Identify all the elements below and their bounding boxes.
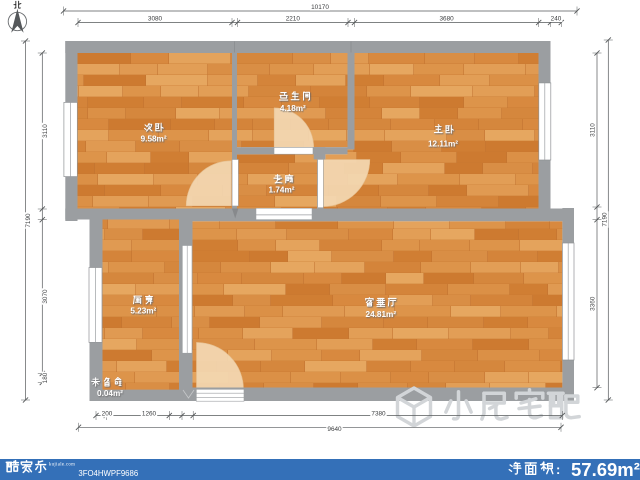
svg-text:3080: 3080: [148, 15, 163, 22]
svg-text:3110: 3110: [42, 124, 49, 138]
svg-text:9.58m²: 9.58m²: [141, 135, 167, 144]
svg-text:3360: 3360: [590, 296, 597, 311]
svg-text:7190: 7190: [602, 212, 609, 227]
svg-text:3680: 3680: [439, 15, 454, 22]
svg-text:kujiale.com: kujiale.com: [49, 462, 75, 467]
svg-text:5.23m²: 5.23m²: [130, 307, 156, 316]
svg-text:9640: 9640: [327, 426, 342, 433]
svg-text:1.74m²: 1.74m²: [269, 185, 295, 194]
svg-text:1260: 1260: [142, 411, 157, 418]
svg-text:12.11m²: 12.11m²: [428, 140, 458, 149]
svg-text:10170: 10170: [311, 4, 329, 11]
svg-text:7380: 7380: [371, 410, 386, 417]
svg-text:180: 180: [42, 372, 49, 383]
svg-text:200: 200: [102, 411, 113, 418]
svg-text:3070: 3070: [42, 289, 49, 304]
svg-text:24.81m²: 24.81m²: [366, 310, 397, 319]
svg-text::: :: [556, 462, 560, 477]
svg-text:7190: 7190: [25, 213, 32, 228]
svg-text:3110: 3110: [590, 123, 597, 137]
svg-text:240: 240: [551, 15, 562, 22]
svg-text:3FO4HWPF9686: 3FO4HWPF9686: [78, 469, 138, 478]
svg-text:57.69m²: 57.69m²: [571, 459, 640, 480]
svg-text:4.18m²: 4.18m²: [280, 104, 306, 113]
svg-text:2210: 2210: [286, 15, 301, 22]
svg-text:0.04m²: 0.04m²: [97, 389, 123, 398]
